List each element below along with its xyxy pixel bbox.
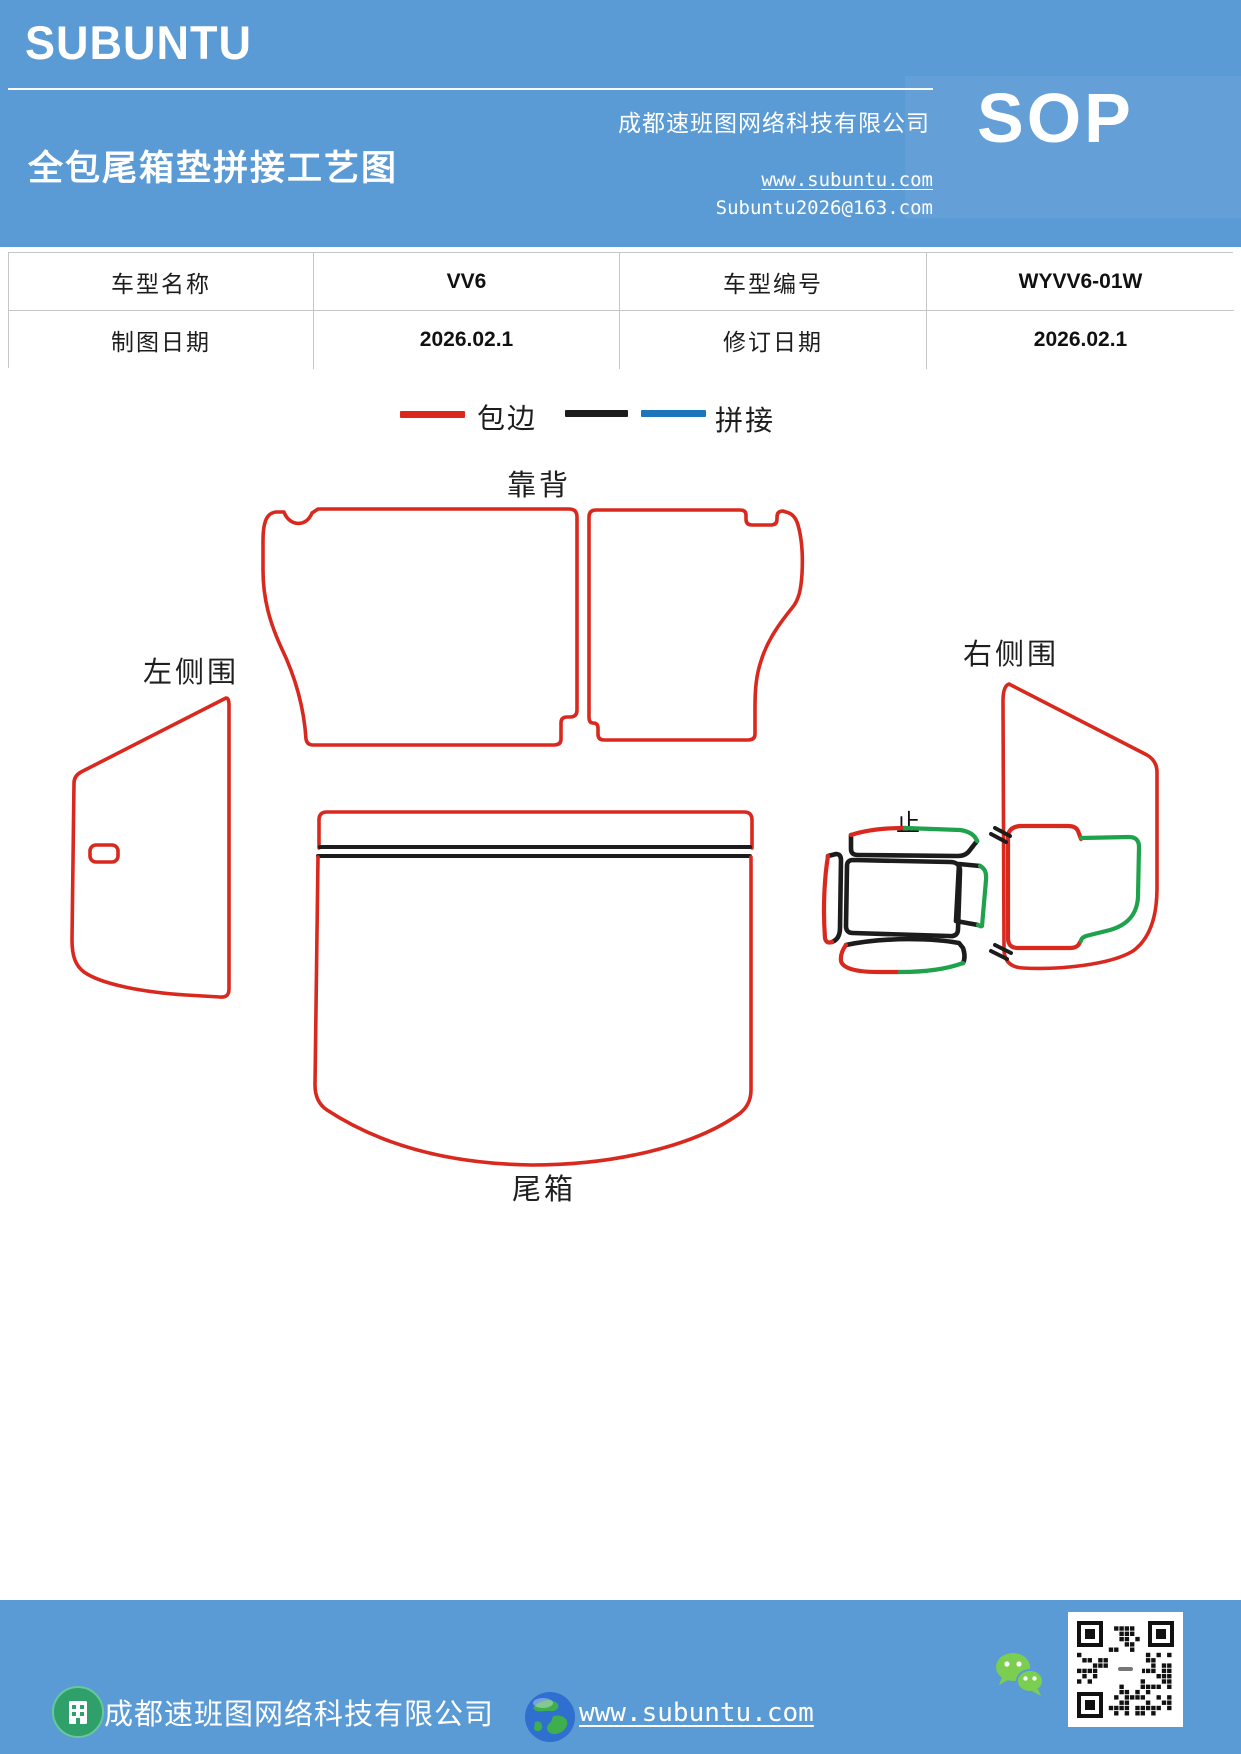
table-cell-label: 制图日期 [9, 311, 314, 369]
vehicle-info-table: 车型名称 VV6 车型编号 WYVV6-01W 制图日期 2026.02.1 修… [8, 252, 1233, 368]
table-cell-value: 2026.02.1 [927, 311, 1234, 369]
right-side-label: 右侧围 [963, 638, 1059, 671]
cluster-center-piece [846, 860, 960, 936]
cluster-left-piece-red-edge [824, 856, 832, 943]
footer-company-name: 成都速班图网络科技有限公司 [104, 1691, 494, 1733]
backrest-left-piece [263, 509, 577, 745]
table-cell-label: 车型名称 [9, 253, 314, 311]
right-inner-piece-red-edge [1008, 826, 1081, 948]
trunk-label: 尾箱 [512, 1173, 576, 1206]
table-cell-value: VV6 [314, 253, 620, 311]
qr-code [1068, 1612, 1183, 1727]
right-inner-piece-green-edge [1081, 837, 1139, 941]
wechat-icon [992, 1650, 1048, 1698]
backrest-right-piece [589, 510, 802, 740]
sop-document-page: SUBUNTU 全包尾箱垫拼接工艺图 成都速班图网络科技有限公司 www.sub… [0, 0, 1241, 1754]
left-side-label: 左侧围 [143, 656, 239, 689]
trunk-main-piece [315, 857, 751, 1165]
page-title: 全包尾箱垫拼接工艺图 [28, 140, 398, 191]
cluster-top-piece [851, 835, 977, 856]
cluster-bottom-piece-green-edge [900, 963, 963, 972]
building-icon [52, 1686, 104, 1738]
pattern-diagram: 靠背 左侧围 右侧围 尾箱 止 [0, 380, 1241, 1210]
sop-badge: SOP [977, 78, 1134, 158]
backrest-label: 靠背 [507, 469, 571, 502]
table-cell-value: 2026.02.1 [314, 311, 620, 369]
website-link[interactable]: www.subuntu.com [761, 169, 933, 191]
cluster-left-piece [828, 854, 841, 942]
company-name: 成都速班图网络科技有限公司 [618, 104, 930, 138]
left-side-panel [72, 698, 229, 997]
table-cell-value: WYVV6-01W [927, 253, 1234, 311]
left-side-panel-slot [90, 845, 118, 862]
header-divider-line [8, 88, 933, 90]
table-cell-label: 车型编号 [620, 253, 927, 311]
cluster-bottom-piece-red-edge [841, 945, 900, 972]
brand-logo: SUBUNTU [25, 16, 252, 71]
stop-label: 止 [896, 810, 920, 837]
table-cell-label: 修订日期 [620, 311, 927, 369]
cluster-right-piece-green-edge [978, 866, 986, 926]
globe-icon [523, 1690, 577, 1744]
trunk-top-strip [319, 812, 752, 848]
footer-website-link[interactable]: www.subuntu.com [579, 1698, 814, 1728]
header-band: SUBUNTU 全包尾箱垫拼接工艺图 成都速班图网络科技有限公司 www.sub… [0, 0, 1241, 247]
cluster-bottom-piece [846, 939, 965, 963]
email-address: Subuntu2026@163.com [716, 197, 933, 219]
